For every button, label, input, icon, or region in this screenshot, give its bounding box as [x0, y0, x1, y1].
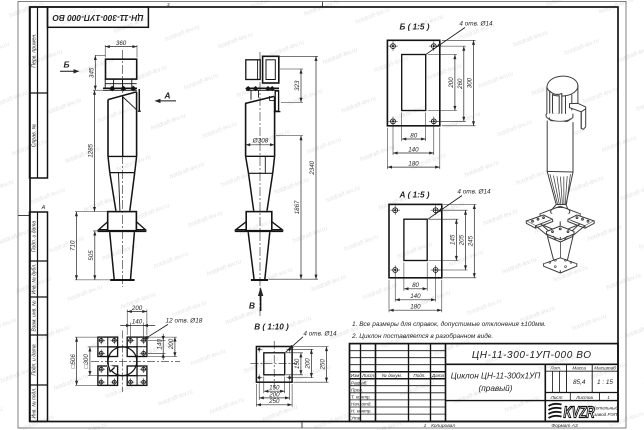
svg-text:□506: □506: [70, 354, 77, 369]
svg-text:180: 180: [410, 304, 421, 311]
svg-text:140: 140: [410, 293, 421, 300]
svg-text:Лист: Лист: [550, 395, 563, 400]
svg-text:Утв.: Утв.: [351, 416, 361, 421]
svg-text:4 отв. Ø14: 4 отв. Ø14: [457, 189, 491, 196]
svg-text:№ докум.: № докум.: [382, 373, 402, 378]
svg-text:Масса: Масса: [572, 366, 586, 371]
svg-text:505: 505: [88, 250, 95, 261]
svg-text:180: 180: [408, 161, 419, 168]
svg-text:85,4: 85,4: [573, 379, 586, 386]
svg-text:200: 200: [305, 358, 312, 370]
svg-text:Н. контр.: Н. контр.: [351, 409, 372, 414]
svg-text:Подп.: Подп.: [413, 373, 425, 378]
svg-text:Листов: Листов: [575, 395, 593, 400]
svg-text:Дата: Дата: [431, 373, 445, 378]
svg-text:Лит.: Лит.: [549, 366, 561, 371]
svg-text:2340: 2340: [309, 160, 316, 175]
svg-text:205: 205: [459, 234, 466, 246]
svg-text:2. Циклон поставляется в разоб: 2. Циклон поставляется в разобранном вид…: [351, 332, 493, 340]
svg-text:ЦН-11-300-1УП-000 ВО: ЦН-11-300-1УП-000 ВО: [52, 13, 143, 23]
svg-text:Нач. отд.: Нач. отд.: [351, 402, 372, 407]
svg-text:710: 710: [70, 240, 77, 251]
svg-text:1. Все размеры для справок, до: 1. Все размеры для справок, допустимые о…: [352, 320, 546, 328]
svg-text:1 : 15: 1 : 15: [597, 379, 613, 386]
svg-text:А: А: [41, 205, 46, 211]
svg-text:245: 245: [467, 235, 474, 247]
svg-text:1867: 1867: [294, 200, 301, 214]
svg-text:Разраб.: Разраб.: [351, 380, 368, 385]
svg-text:4 отв. Ø14: 4 отв. Ø14: [459, 21, 493, 28]
svg-text:4 отв. Ø14: 4 отв. Ø14: [303, 330, 337, 337]
svg-text:200: 200: [131, 305, 143, 312]
svg-text:Изм: Изм: [351, 373, 360, 378]
svg-text:Перв. примен.: Перв. примен.: [32, 33, 38, 67]
svg-text:Копировал: Копировал: [431, 423, 455, 429]
svg-text:А: А: [163, 90, 170, 100]
svg-text:145: 145: [449, 234, 456, 245]
svg-text:А ( 1:5 ): А ( 1:5 ): [398, 191, 429, 200]
svg-text:В ( 1:10 ): В ( 1:10 ): [254, 323, 289, 332]
svg-text:завод РЭП: завод РЭП: [593, 412, 618, 417]
svg-text:(правый): (правый): [479, 384, 513, 393]
svg-text:80: 80: [410, 132, 417, 139]
svg-text:1285: 1285: [88, 143, 95, 157]
svg-text:□300: □300: [83, 354, 90, 369]
svg-text:Б ( 1:5 ): Б ( 1:5 ): [400, 23, 430, 32]
svg-text:Т. контр.: Т. контр.: [351, 394, 371, 399]
svg-text:360: 360: [116, 40, 127, 47]
svg-text:260: 260: [457, 78, 464, 90]
svg-text:Циклон ЦН-11-300х1УП: Циклон ЦН-11-300х1УП: [451, 371, 541, 380]
svg-text:KVZR: KVZR: [564, 405, 595, 422]
svg-text:Инв. № подл.: Инв. № подл.: [32, 387, 38, 418]
svg-text:323: 323: [294, 80, 301, 91]
svg-text:250: 250: [268, 398, 280, 405]
svg-text:Ø308: Ø308: [252, 138, 269, 145]
svg-text:140: 140: [408, 146, 419, 153]
svg-text:140: 140: [156, 339, 163, 350]
svg-text:Масштаб: Масштаб: [594, 366, 616, 371]
svg-text:Инв. № дубл.: Инв. № дубл.: [32, 264, 38, 295]
svg-text:345: 345: [89, 67, 96, 78]
svg-text:80: 80: [412, 282, 419, 289]
svg-text:В: В: [249, 301, 255, 311]
svg-text:12 отв. Ø18: 12 отв. Ø18: [166, 318, 203, 325]
svg-text:150: 150: [294, 358, 301, 369]
svg-text:Подп. и дата: Подп. и дата: [32, 221, 38, 253]
svg-text:Пров.: Пров.: [351, 387, 363, 392]
svg-text:1: 1: [424, 423, 427, 429]
svg-text:1: 1: [607, 395, 610, 400]
svg-text:200: 200: [168, 338, 175, 350]
svg-text:250: 250: [320, 359, 327, 371]
svg-text:ЦН-11-300-1УП-000 ВО: ЦН-11-300-1УП-000 ВО: [472, 350, 592, 361]
svg-text:140: 140: [132, 319, 143, 326]
svg-text:Лист: Лист: [361, 373, 374, 378]
svg-text:200: 200: [448, 77, 455, 89]
svg-text:Формат А3: Формат А3: [551, 423, 578, 429]
svg-text:Котельный: Котельный: [593, 405, 618, 411]
svg-text:Взам. инв. №: Взам. инв. №: [32, 300, 38, 332]
svg-text:Б: Б: [63, 59, 69, 69]
svg-text:Подп. и дата: Подп. и дата: [32, 344, 38, 376]
svg-text:Справ. №: Справ. №: [32, 123, 38, 147]
svg-text:300: 300: [467, 77, 474, 88]
